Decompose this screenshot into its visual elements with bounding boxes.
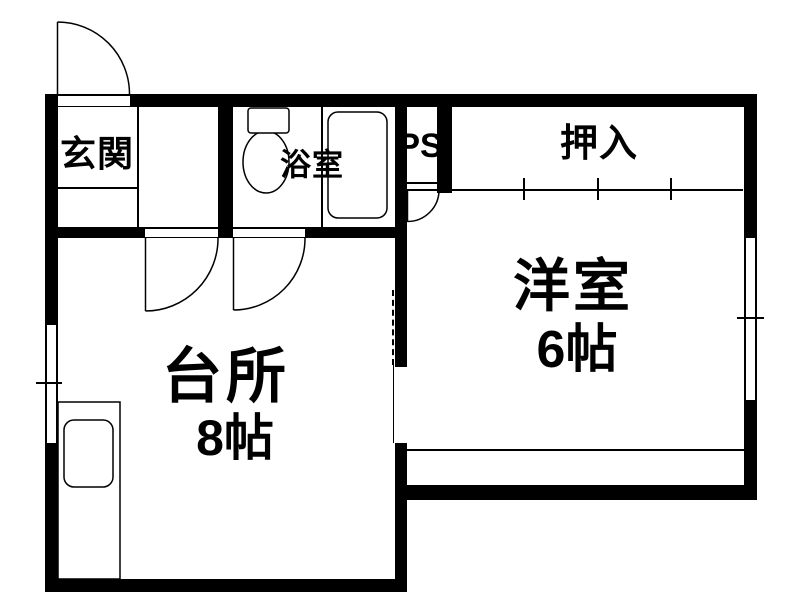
bathroom-kitchen-door-icon xyxy=(234,238,306,310)
entry-door-icon xyxy=(58,22,130,94)
room-label-western-room: 洋室 xyxy=(513,259,633,316)
room-label-oshiire: 押入 xyxy=(560,125,638,163)
doors-and-fixtures-layer xyxy=(0,0,800,600)
kitchen-sink-icon xyxy=(64,420,113,487)
room-size-western-room: 6帖 xyxy=(537,324,618,376)
room-label-ps: PS xyxy=(397,129,442,163)
hall-kitchen-door-icon xyxy=(146,238,219,311)
room-label-kitchen: 台所 xyxy=(162,347,290,407)
room-label-bathroom: 浴室 xyxy=(280,150,344,181)
floor-plan: 玄関 浴室 PS 押入 洋室 6帖 台所 8帖 xyxy=(0,0,800,600)
room-size-kitchen: 8帖 xyxy=(196,413,274,463)
room-label-genkan: 玄関 xyxy=(60,136,134,172)
kitchen-counter-icon xyxy=(58,402,120,579)
ps-door-icon xyxy=(408,190,440,222)
